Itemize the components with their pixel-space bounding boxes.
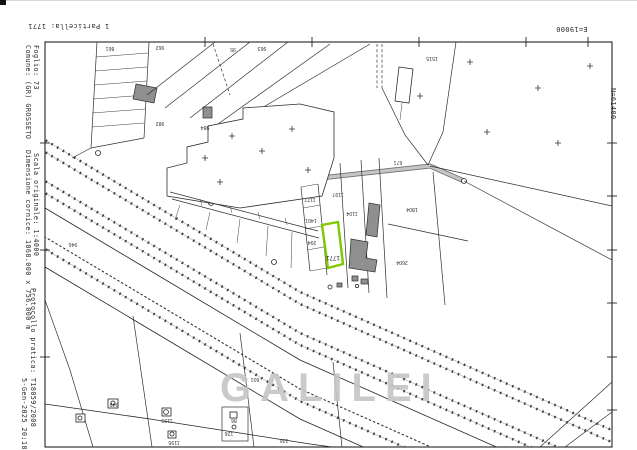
parcel-number-label: 1199	[161, 417, 172, 423]
cadastral-map-page: 8619629596315159829846711197112714013941…	[0, 0, 637, 450]
parcel-number-label: 1401	[305, 217, 317, 223]
parcel-number-label: 984	[201, 124, 210, 130]
parcel-number-label: 136	[280, 437, 289, 443]
parcel-number-label: 95	[230, 46, 236, 52]
railway-corridor	[40, 137, 616, 450]
parcel-number-label: 1515	[426, 55, 438, 61]
parcels-mid-right	[340, 158, 468, 305]
parcel-number-label: 982	[156, 120, 165, 126]
parcel-number-label: 601	[251, 376, 260, 382]
parcel-number-label: 671	[394, 159, 403, 165]
margin-scala: Scala originale: 1:4000	[32, 153, 40, 256]
parcel-number-label: 963	[258, 45, 267, 51]
parcel-number-label: 394	[308, 239, 317, 245]
parcel-number-label: 946	[69, 241, 78, 247]
coord-label-east: E=19000	[556, 25, 588, 33]
parcel-number-label: 1127	[304, 196, 315, 202]
parcel-block-topleft	[72, 42, 212, 158]
margin-foglio: Foglio: 73	[32, 45, 40, 90]
parcel-number-label: 1771	[326, 254, 340, 261]
coord-label-north: N=61400	[609, 88, 617, 119]
cadastral-map: 8619629596315159829846711197112714013941…	[0, 0, 637, 450]
parcel-number-label: 2604	[396, 259, 408, 265]
parcel-number-label: 1804	[406, 206, 418, 212]
margin-protocollo: Protocollo pratica: T18059/2008	[29, 288, 37, 427]
parcels-bottom	[45, 300, 612, 447]
parcel-labels: 8619629596315159829846711197112714013941…	[69, 44, 438, 445]
parcel-number-label: 1195	[168, 439, 179, 445]
parcel-number-label: 962	[156, 44, 165, 50]
map-frame	[40, 37, 617, 447]
parcel-number-label: 86	[231, 417, 237, 423]
parcel-number-label: 126	[225, 430, 234, 436]
margin-timestamp: 5-Gen-2025 20:18:2	[20, 378, 28, 450]
parcel-number-label: 949	[110, 401, 119, 407]
parcel-number-label: 861	[106, 45, 115, 51]
parcel-number-label: 1104	[346, 210, 357, 216]
header-particella: 1 Particella: 1771	[28, 22, 109, 30]
margin-comune: Comune: (GR) GROSSETO	[24, 45, 32, 139]
parcel-number-label: 1197	[332, 191, 343, 197]
